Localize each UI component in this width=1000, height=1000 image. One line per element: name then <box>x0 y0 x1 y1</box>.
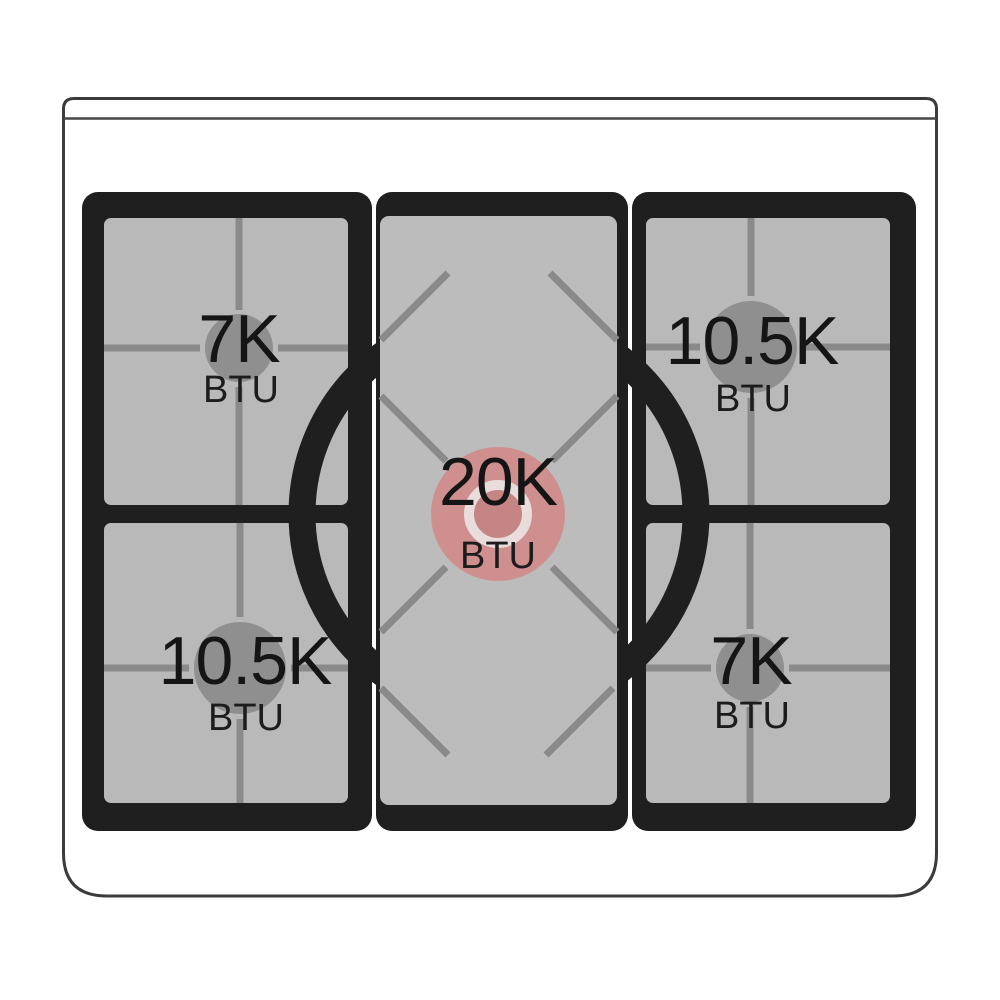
burner-power-top-right: 10.5K <box>666 307 839 375</box>
burner-unit-top-left: BTU <box>203 371 279 409</box>
burner-power-center: 20K <box>439 448 557 516</box>
stove-top-diagram: 7K BTU 10.5K BTU 20K BTU 10.5K BTU 7K BT… <box>0 0 1000 1000</box>
burner-power-top-left: 7K <box>198 305 279 373</box>
burner-unit-bottom-right: BTU <box>714 697 790 735</box>
burner-power-bottom-left: 10.5K <box>159 627 332 695</box>
burner-power-bottom-right: 7K <box>710 627 791 695</box>
burner-unit-top-right: BTU <box>715 380 791 418</box>
burner-unit-bottom-left: BTU <box>208 699 284 737</box>
burner-unit-center: BTU <box>460 537 536 575</box>
